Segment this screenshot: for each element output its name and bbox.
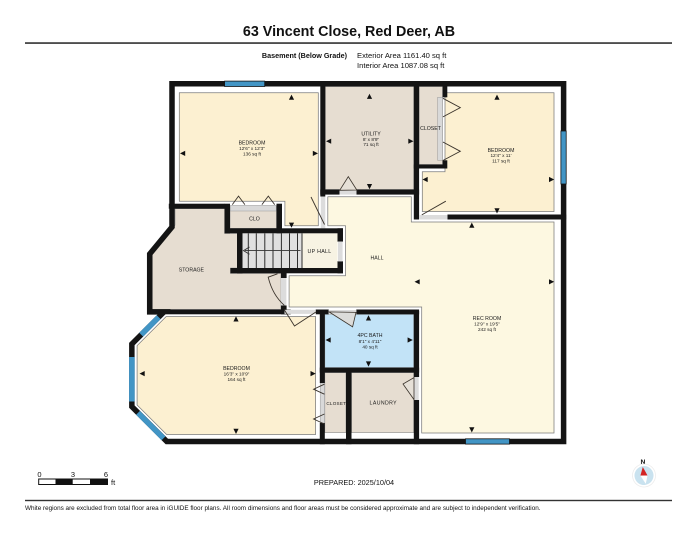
svg-text:STORAGE: STORAGE: [179, 268, 205, 274]
svg-text:CLOSET: CLOSET: [326, 401, 346, 406]
svg-text:16'3" x 10'9": 16'3" x 10'9": [224, 372, 250, 377]
svg-text:164 sq ft: 164 sq ft: [228, 377, 247, 382]
svg-text:117 sq ft: 117 sq ft: [492, 158, 510, 163]
svg-text:White regions are excluded fro: White regions are excluded from total fl…: [25, 505, 541, 512]
svg-text:Interior Area 1087.08 sq ft: Interior Area 1087.08 sq ft: [357, 61, 445, 70]
svg-text:12'9" x 19'5": 12'9" x 19'5": [474, 321, 500, 326]
svg-text:Exterior Area 1161.40 sq ft: Exterior Area 1161.40 sq ft: [357, 51, 447, 60]
svg-text:71 sq ft: 71 sq ft: [363, 142, 379, 147]
svg-text:242 sq ft: 242 sq ft: [478, 327, 497, 332]
svg-text:UP HALL: UP HALL: [307, 249, 331, 255]
svg-text:Basement (Below Grade): Basement (Below Grade): [262, 51, 348, 60]
svg-text:8' x 8'9": 8' x 8'9": [363, 137, 380, 142]
svg-text:6: 6: [104, 470, 108, 479]
svg-text:CLOSET: CLOSET: [420, 126, 442, 132]
svg-text:0: 0: [37, 470, 41, 479]
svg-text:12'4" x 11': 12'4" x 11': [490, 153, 511, 158]
svg-text:HALL: HALL: [371, 256, 384, 262]
svg-text:3: 3: [71, 470, 75, 479]
svg-text:63 Vincent Close, Red Deer, AB: 63 Vincent Close, Red Deer, AB: [243, 24, 455, 40]
svg-text:40 sq ft: 40 sq ft: [362, 344, 378, 349]
svg-text:136 sq ft: 136 sq ft: [243, 151, 262, 156]
svg-text:8'1" x 4'11": 8'1" x 4'11": [359, 339, 382, 344]
svg-text:LAUNDRY: LAUNDRY: [370, 401, 398, 407]
svg-text:PREPARED: 2025/10/04: PREPARED: 2025/10/04: [314, 478, 394, 487]
svg-text:12'6" x 12'3": 12'6" x 12'3": [239, 146, 265, 151]
svg-text:CLO: CLO: [249, 217, 260, 223]
